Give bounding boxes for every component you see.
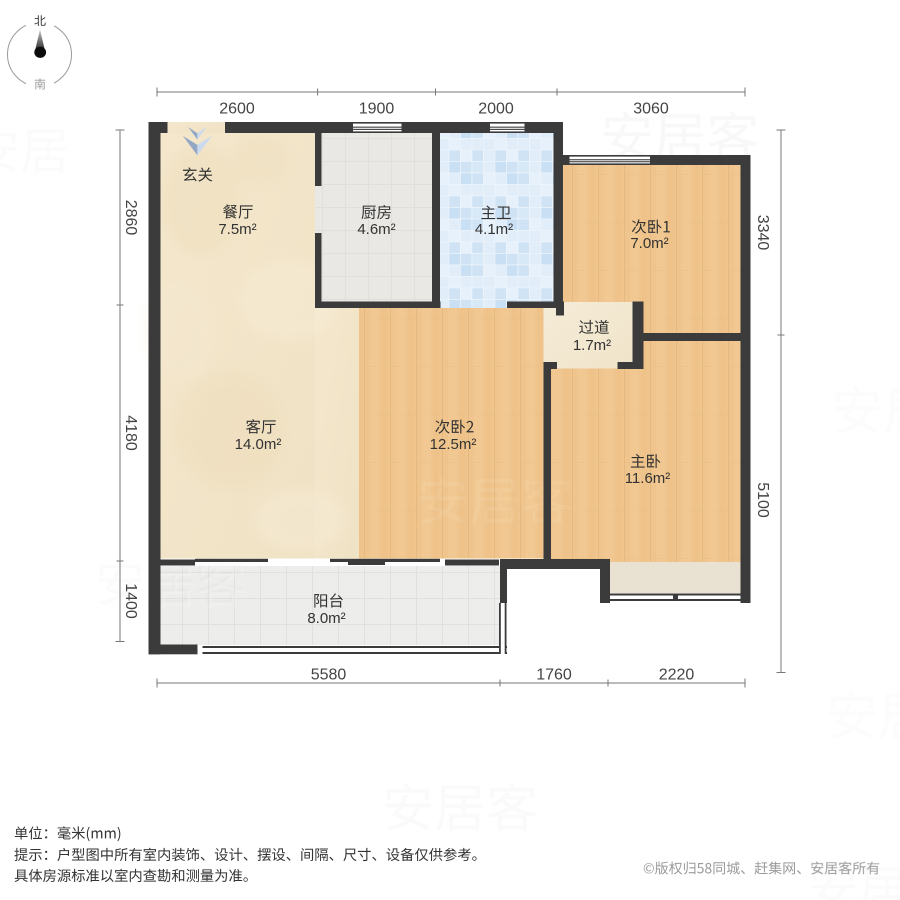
svg-text:2220: 2220 (659, 667, 695, 684)
svg-text:12.5m²: 12.5m² (430, 436, 477, 453)
svg-text:14.0m²: 14.0m² (235, 436, 282, 453)
svg-text:4180: 4180 (122, 415, 139, 451)
svg-text:1900: 1900 (359, 101, 395, 118)
svg-text:3060: 3060 (633, 101, 669, 118)
svg-text:7.5m²: 7.5m² (218, 221, 256, 238)
svg-text:2600: 2600 (219, 101, 255, 118)
svg-text:4.6m²: 4.6m² (357, 221, 395, 238)
svg-text:1760: 1760 (536, 667, 572, 684)
svg-text:7.0m²: 7.0m² (630, 235, 668, 252)
svg-text:2000: 2000 (478, 101, 514, 118)
svg-text:1.7m²: 1.7m² (573, 337, 611, 354)
svg-text:3340: 3340 (754, 215, 771, 251)
svg-text:8.0m²: 8.0m² (307, 610, 345, 627)
svg-text:5100: 5100 (754, 482, 771, 518)
svg-text:1400: 1400 (122, 583, 139, 619)
svg-text:5580: 5580 (311, 667, 347, 684)
svg-text:11.6m²: 11.6m² (625, 470, 671, 487)
svg-text:4.1m²: 4.1m² (475, 221, 513, 238)
svg-text:2860: 2860 (122, 200, 139, 236)
